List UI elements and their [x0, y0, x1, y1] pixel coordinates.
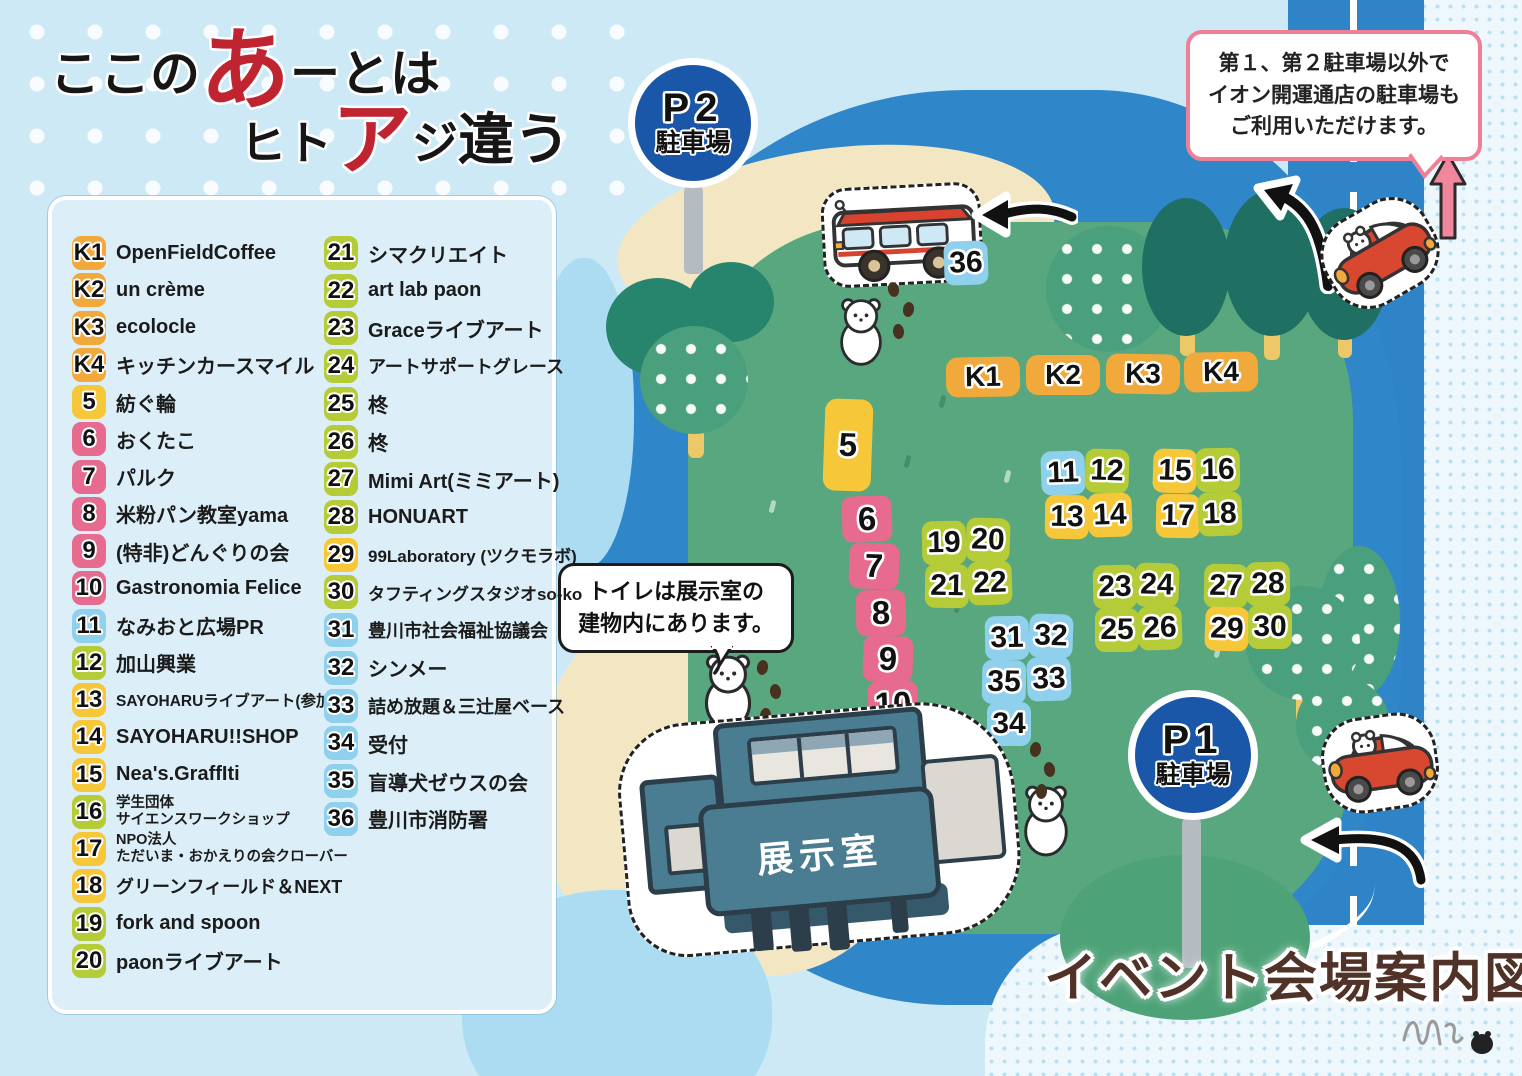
- legend-item-26: 26柊: [324, 425, 552, 459]
- booth-label: un crème: [116, 279, 205, 302]
- map-booth-25: 25: [1095, 608, 1139, 652]
- booth-badge: 34: [324, 726, 358, 760]
- booth-badge: K4: [72, 348, 106, 382]
- booth-label: (特非)どんぐりの会: [116, 537, 289, 566]
- booth-label: 盲導犬ゼウスの会: [368, 767, 528, 796]
- booth-badge: 15: [72, 758, 106, 792]
- booth-badge: 14: [72, 720, 106, 754]
- booth-badge: 23: [324, 311, 358, 345]
- legend-column-2: 21シマクリエイト 22art lab paon 23Graceライブアート 2…: [324, 236, 552, 836]
- map-booth-36: 36: [943, 240, 989, 286]
- map-booth-K3: K3: [1106, 353, 1181, 394]
- booth-label: Mimi Art(ミミアート): [368, 465, 559, 494]
- legend-item-33: 33詰め放題＆三辻屋ベース: [324, 689, 552, 723]
- legend-item-16: 16学生団体サイエンスワークショップ: [72, 795, 316, 829]
- bear-mascot-icon: [830, 296, 892, 368]
- map-booth-15: 15: [1152, 448, 1198, 494]
- event-logo: ここのあーとは ヒトアジ違う: [50, 26, 610, 180]
- booth-label: 受付: [368, 729, 408, 758]
- map-booth-13: 13: [1045, 495, 1090, 540]
- map-booth-31: 31: [985, 616, 1030, 661]
- logo-text: ヒト: [240, 117, 332, 169]
- legend-item-21: 21シマクリエイト: [324, 236, 552, 270]
- booth-label: 柊: [368, 427, 388, 456]
- p2-sign-bottom: 駐車場: [655, 128, 730, 158]
- legend-item-18: 18グリーンフィールド＆NEXT: [72, 869, 316, 903]
- booth-label-line2: サイエンスワークショップ: [116, 812, 290, 829]
- legend-item-17: 17NPO法人ただいま・おかえりの会クローバー: [72, 832, 316, 866]
- legend-item-23: 23Graceライブアート: [324, 311, 552, 345]
- booth-label: アートサポートグレース: [368, 353, 564, 379]
- booth-badge: 29: [324, 538, 358, 572]
- booth-label: 詰め放題＆三辻屋ベース: [368, 693, 565, 719]
- p2-parking-sign: P2 駐車場: [628, 58, 758, 188]
- legend-item-30: 30タフティングスタジオso-ko: [324, 575, 552, 609]
- legend-item-10: 10Gastronomia Felice: [72, 571, 316, 605]
- booth-label: タフティングスタジオso-ko: [368, 580, 582, 605]
- booth-badge: K1: [72, 236, 106, 270]
- booth-label: paonライブアート: [116, 946, 283, 975]
- legend-item-5: 5紡ぐ輪: [72, 385, 316, 419]
- parking-note: 第１、第２駐車場以外で イオン開運通店の駐車場も ご利用いただけます。: [1186, 30, 1482, 161]
- map-booth-8: 8: [856, 590, 907, 637]
- logo-text: ジ: [412, 117, 458, 169]
- booth-label: シマクリエイト: [368, 239, 508, 268]
- booth-badge: K2: [72, 273, 106, 307]
- map-booth-33: 33: [1026, 656, 1072, 702]
- tree: [640, 326, 748, 434]
- booth-badge: 8: [72, 497, 106, 531]
- legend-item-7: 7パルク: [72, 460, 316, 494]
- roof-window: [747, 725, 901, 786]
- legend-item-11: 11なみおと広場PR: [72, 609, 316, 643]
- toilet-note-line2: 建物内にあります。: [578, 611, 774, 636]
- legend-item-15: 15Nea's.GraffIti: [72, 758, 316, 792]
- map-booth-5: 5: [822, 398, 873, 492]
- legend-item-K1: K1OpenFieldCoffee: [72, 236, 316, 270]
- map-booth-K2: K2: [1026, 355, 1100, 395]
- legend-item-14: 14SAYOHARU!!SHOP: [72, 720, 316, 754]
- legend-panel: K1OpenFieldCoffee K2un crème K3ecolocle …: [48, 196, 556, 1014]
- logo-text: ーとは: [290, 46, 440, 102]
- legend-item-6: 6おくたこ: [72, 422, 316, 456]
- building-leg: [826, 901, 850, 951]
- tree: [1142, 198, 1230, 336]
- parking-note-line3: ご利用いただけます。: [1230, 115, 1438, 138]
- booth-badge: 10: [72, 571, 106, 605]
- booth-label: 米粉パン教室yama: [116, 499, 288, 528]
- booth-label: Graceライブアート: [368, 314, 544, 343]
- map-booth-22: 22: [967, 560, 1013, 606]
- booth-badge: 7: [72, 460, 106, 494]
- booth-label: fork and spoon: [116, 912, 260, 935]
- map-booth-28: 28: [1246, 562, 1291, 607]
- legend-item-25: 25柊: [324, 387, 552, 421]
- booth-badge: 5: [72, 385, 106, 419]
- booth-badge: 19: [72, 907, 106, 941]
- booth-badge: 24: [324, 349, 358, 383]
- legend-item-29: 2999Laboratory (ツクモラボ): [324, 538, 552, 572]
- p2-sign-post: [684, 186, 703, 274]
- booth-label: ecolocle: [116, 316, 196, 339]
- map-booth-9: 9: [862, 635, 914, 683]
- map-booth-32: 32: [1028, 613, 1074, 659]
- exhibition-building: 展示室: [612, 686, 1035, 978]
- event-venue-map-poster: K1 K2 K3 K4 5 6 7 8 9 10 11 12 13 14 15 …: [0, 0, 1522, 1076]
- map-booth-23: 23: [1093, 565, 1138, 610]
- map-booth-29: 29: [1204, 606, 1250, 652]
- map-booth-24: 24: [1134, 562, 1180, 608]
- booth-badge: 18: [72, 869, 106, 903]
- legend-item-13: 13SAYOHARUライブアート(参加型): [72, 683, 316, 717]
- booth-label: SAYOHARU!!SHOP: [116, 726, 299, 749]
- map-booth-27: 27: [1204, 564, 1249, 609]
- booth-label: 99Laboratory (ツクモラボ): [368, 542, 577, 567]
- booth-badge: 11: [72, 609, 106, 643]
- map-booth-7: 7: [848, 542, 900, 590]
- booth-label: 紡ぐ輪: [116, 388, 176, 417]
- legend-item-35: 35盲導犬ゼウスの会: [324, 764, 552, 798]
- legend-item-34: 34受付: [324, 726, 552, 760]
- booth-label: 豊川市社会福祉協議会: [368, 617, 548, 643]
- booth-label: NPO法人: [116, 832, 348, 849]
- p1-sign-top: P1: [1163, 720, 1224, 760]
- parking-note-line2: イオン開運通店の駐車場も: [1208, 84, 1460, 107]
- map-booth-26: 26: [1137, 605, 1183, 651]
- logo-text: ここの: [50, 46, 200, 102]
- booth-badge: 28: [324, 500, 358, 534]
- map-booth-K4: K4: [1184, 351, 1259, 392]
- booth-label: OpenFieldCoffee: [116, 242, 276, 265]
- bubble-tail: [709, 646, 735, 676]
- map-booth-18: 18: [1197, 491, 1243, 537]
- booth-label: Nea's.GraffIti: [116, 763, 240, 786]
- building-label: 展示室: [700, 789, 940, 915]
- booth-label: パルク: [116, 462, 176, 491]
- booth-badge: 25: [324, 387, 358, 421]
- booth-label: HONUART: [368, 506, 468, 529]
- booth-badge: 36: [324, 802, 358, 836]
- booth-badge: 32: [324, 651, 358, 685]
- booth-badge: 33: [324, 689, 358, 723]
- booth-label: art lab paon: [368, 279, 481, 302]
- legend-item-24: 24アートサポートグレース: [324, 349, 552, 383]
- booth-label: SAYOHARUライブアート(参加型): [116, 689, 352, 711]
- map-booth-16: 16: [1196, 448, 1241, 493]
- map-booth-11: 11: [1040, 450, 1086, 496]
- booth-label-line2: ただいま・おかえりの会クローバー: [116, 849, 348, 866]
- booth-label: 学生団体: [116, 795, 290, 812]
- logo-accent-a2: ア: [332, 95, 412, 184]
- toilet-note-bubble: トイレは展示室の 建物内にあります。: [558, 563, 794, 653]
- booth-badge: 17: [72, 832, 106, 866]
- legend-item-8: 8米粉パン教室yama: [72, 497, 316, 531]
- booth-label: Gastronomia Felice: [116, 577, 302, 600]
- booth-label: グリーンフィールド＆NEXT: [116, 873, 342, 899]
- legend-item-28: 28HONUART: [324, 500, 552, 534]
- booth-label: なみおと広場PR: [116, 611, 264, 640]
- legend-item-K4: K4キッチンカースマイル: [72, 348, 316, 382]
- artist-signature: [1398, 1000, 1498, 1060]
- map-booth-30: 30: [1248, 605, 1292, 649]
- legend-item-K3: K3ecolocle: [72, 311, 316, 345]
- booth-badge: 22: [324, 274, 358, 308]
- toilet-note-line1: トイレは展示室の: [588, 579, 764, 604]
- booth-label: おくたこ: [116, 425, 196, 454]
- booth-label: キッチンカースマイル: [116, 350, 314, 379]
- map-booth-19: 19: [922, 521, 967, 566]
- booth-badge: 30: [324, 575, 358, 609]
- legend-item-31: 31豊川市社会福祉協議会: [324, 613, 552, 647]
- red-car-icon: [1320, 714, 1443, 813]
- map-booth-K1: K1: [946, 356, 1021, 397]
- booth-label: 豊川市消防署: [368, 804, 488, 833]
- map-booth-20: 20: [965, 517, 1011, 563]
- booth-badge: 16: [72, 795, 106, 829]
- legend-item-19: 19fork and spoon: [72, 907, 316, 941]
- booth-badge: 26: [324, 425, 358, 459]
- booth-badge: 9: [72, 534, 106, 568]
- legend-item-27: 27Mimi Art(ミミアート): [324, 462, 552, 496]
- map-booth-17: 17: [1156, 494, 1201, 539]
- booth-badge: 20: [72, 944, 106, 978]
- booth-label: シンメー: [368, 653, 447, 682]
- legend-item-20: 20paonライブアート: [72, 944, 316, 978]
- map-booth-21: 21: [925, 564, 970, 609]
- booth-badge: 31: [324, 613, 358, 647]
- arrow-left-icon: [968, 183, 1078, 245]
- curved-arrow-icon: [1295, 810, 1429, 894]
- legend-item-12: 12加山興業: [72, 646, 316, 680]
- booth-label: 柊: [368, 389, 388, 418]
- booth-badge: 21: [324, 236, 358, 270]
- booth-badge: 13: [72, 683, 106, 717]
- legend-column-1: K1OpenFieldCoffee K2un crème K3ecolocle …: [72, 236, 316, 978]
- legend-item-22: 22art lab paon: [324, 274, 552, 308]
- p2-sign-top: P2: [663, 88, 724, 128]
- booth-badge: 35: [324, 764, 358, 798]
- legend-item-32: 32シンメー: [324, 651, 552, 685]
- legend-item-K2: K2un crème: [72, 273, 316, 307]
- booth-badge: K3: [72, 311, 106, 345]
- booth-badge: 27: [324, 462, 358, 496]
- map-booth-12: 12: [1084, 448, 1130, 494]
- logo-text: 違う: [458, 108, 570, 171]
- legend-item-9: 9(特非)どんぐりの会: [72, 534, 316, 568]
- booth-badge: 12: [72, 646, 106, 680]
- parking-note-line1: 第１、第２駐車場以外で: [1219, 52, 1450, 75]
- legend-item-36: 36豊川市消防署: [324, 802, 552, 836]
- map-booth-14: 14: [1087, 492, 1133, 538]
- p1-sign-bottom: 駐車場: [1155, 760, 1230, 790]
- p1-parking-sign: P1 駐車場: [1128, 690, 1258, 820]
- booth-label: 加山興業: [116, 648, 196, 677]
- booth-badge: 6: [72, 422, 106, 456]
- map-booth-6: 6: [841, 495, 893, 543]
